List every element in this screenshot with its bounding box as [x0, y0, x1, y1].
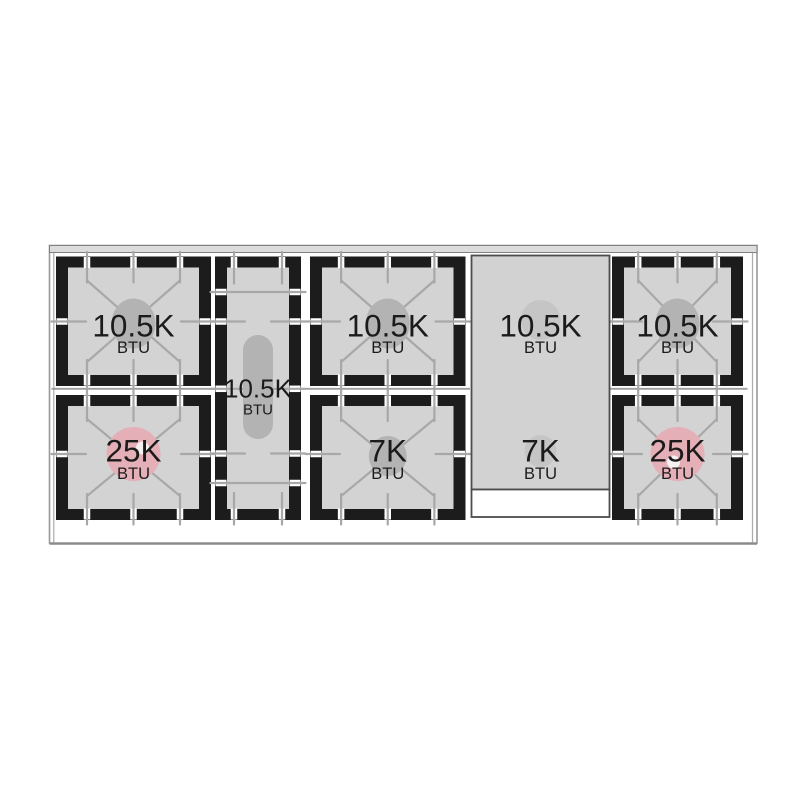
btu-value-label: 25K: [105, 433, 161, 469]
btu-unit-label: BTU: [524, 465, 557, 483]
burner-right-front: 25KBTU: [608, 391, 748, 525]
btu-unit-label: BTU: [117, 465, 150, 483]
burner-center-left-oval: 10.5KBTU: [211, 252, 306, 525]
btu-unit-label: BTU: [661, 465, 694, 483]
btu-value-label: 7K: [521, 433, 560, 469]
griddle-section: 10.5K BTU 7K BTU: [472, 256, 610, 518]
griddle-drip-tray: [472, 490, 610, 518]
btu-unit-label: BTU: [371, 339, 404, 357]
cooktop-diagram-svg: 10.5KBTU25KBTU10.5KBTU7KBTU10.5KBTU25KBT…: [0, 0, 800, 800]
burner-left-rear: 10.5KBTU: [52, 252, 216, 391]
burner-center-rear: 10.5KBTU: [306, 252, 471, 391]
btu-unit-label: BTU: [524, 339, 557, 357]
btu-value-label: 25K: [649, 433, 705, 469]
btu-unit-label: BTU: [243, 402, 273, 419]
burner-right-rear: 10.5KBTU: [608, 252, 748, 391]
btu-unit-label: BTU: [371, 465, 404, 483]
btu-unit-label: BTU: [117, 339, 150, 357]
btu-value-label: 7K: [368, 433, 407, 469]
btu-unit-label: BTU: [661, 339, 694, 357]
cooktop-diagram: 10.5KBTU25KBTU10.5KBTU7KBTU10.5KBTU25KBT…: [0, 0, 800, 800]
backguard-strip: [50, 246, 758, 253]
burner-center-front: 7KBTU: [306, 391, 471, 525]
btu-value-label: 10.5K: [224, 374, 293, 404]
burner-left-front: 25KBTU: [52, 391, 216, 525]
